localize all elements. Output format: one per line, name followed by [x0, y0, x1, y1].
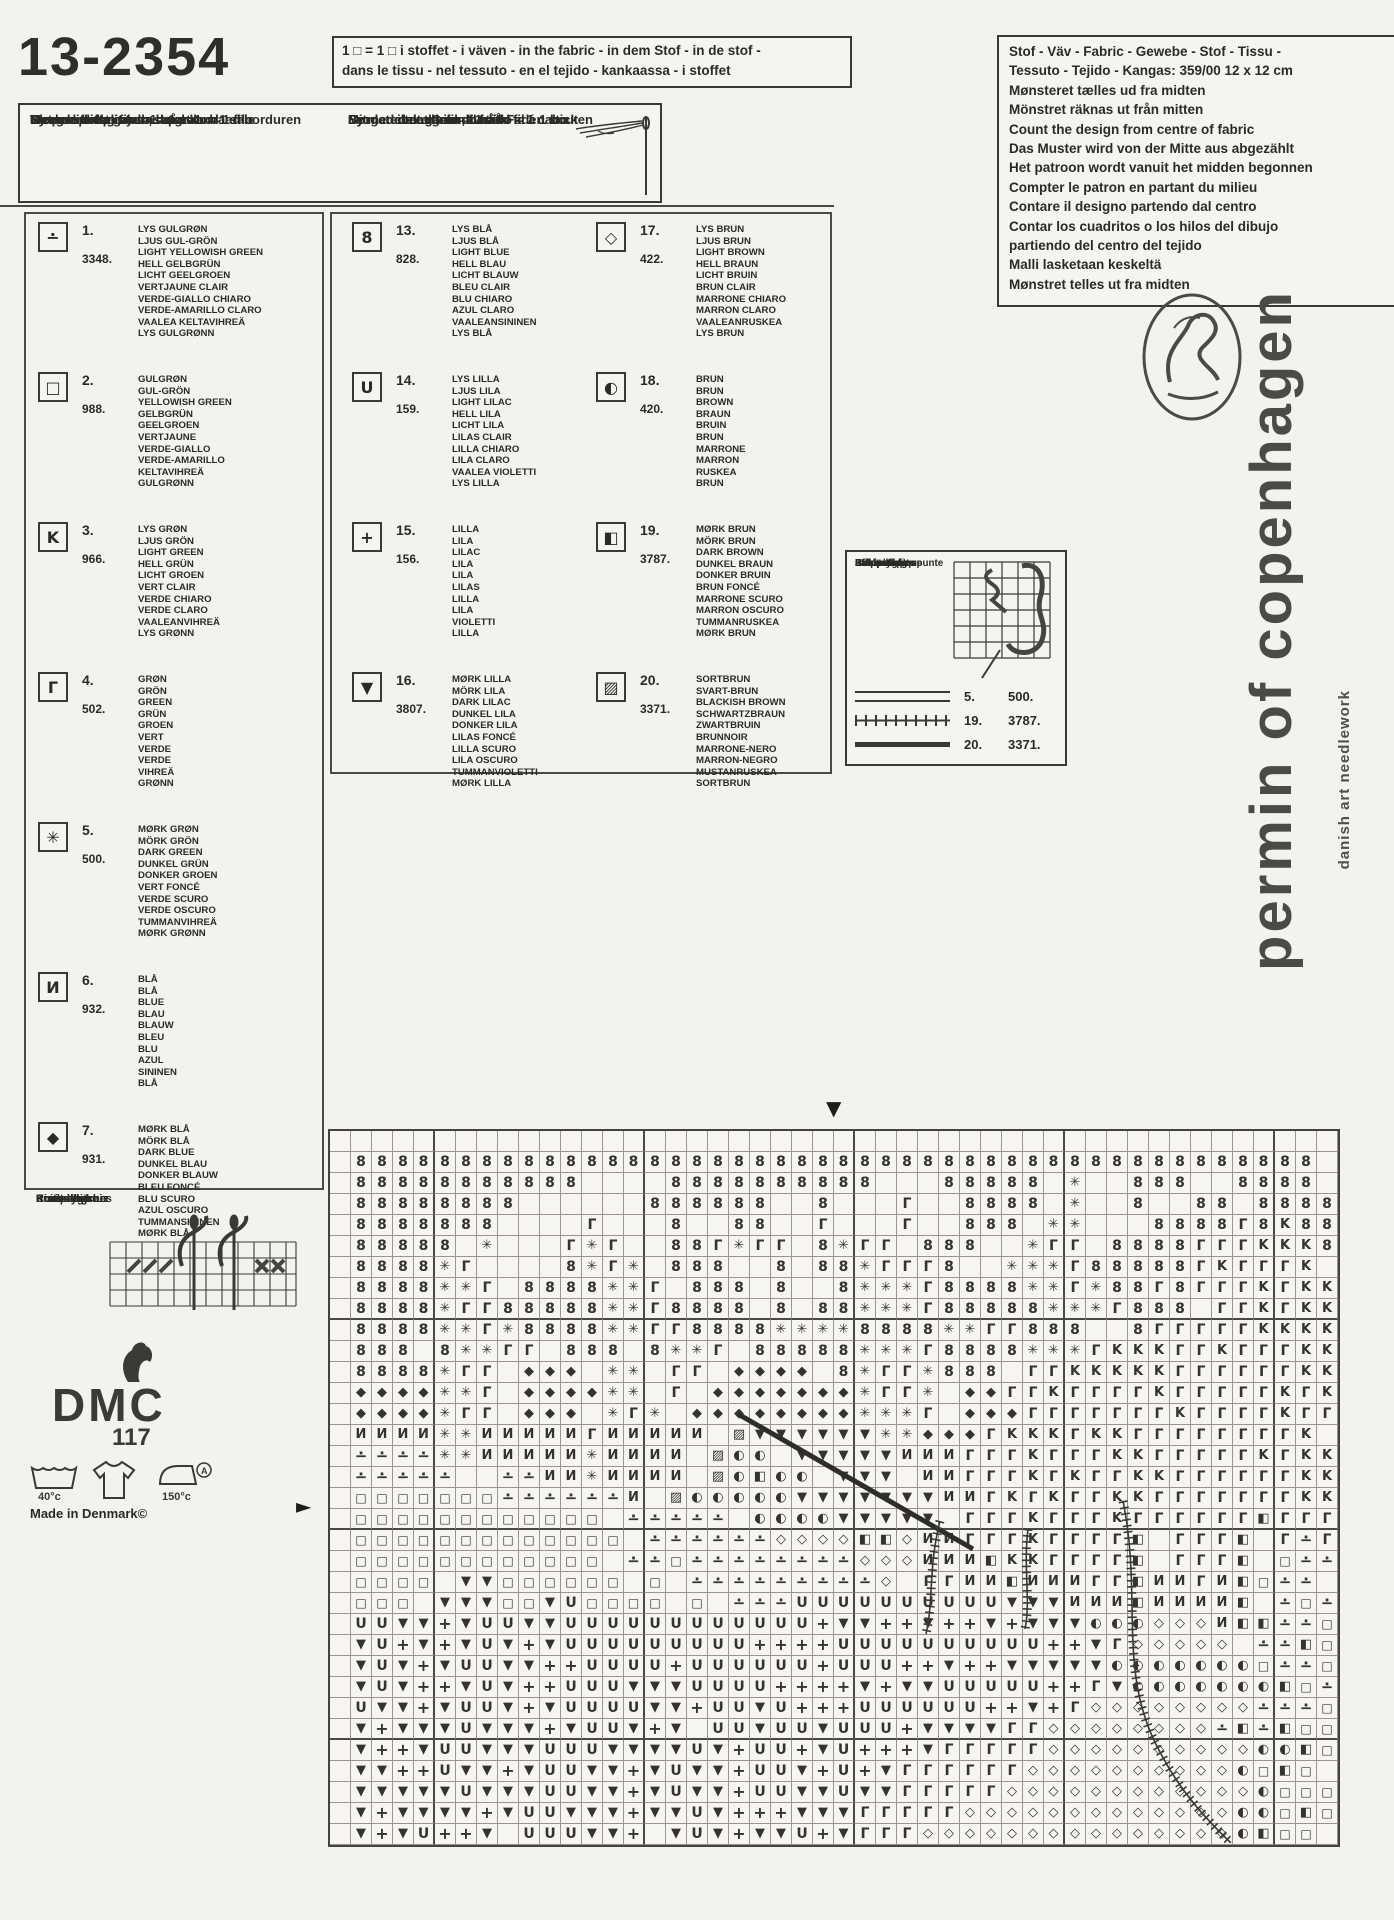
chart-cell: 8: [393, 1278, 414, 1299]
chart-cell: 8: [1170, 1152, 1191, 1173]
chart-cell: ✳: [477, 1236, 498, 1257]
text-line: Sy med delt garn = 1 tråd: [348, 111, 503, 129]
chart-cell: U: [1023, 1635, 1044, 1656]
legend-color-names: MØRK GRØNMÖRK GRÖNDARK GREENDUNKEL GRÜND…: [138, 824, 217, 940]
chart-cell: U: [561, 1698, 582, 1719]
chart-cell: И: [897, 1446, 918, 1467]
chart-cell: ✳: [876, 1404, 897, 1425]
chart-cell: [330, 1509, 351, 1530]
chart-cell: ∸: [708, 1572, 729, 1593]
chart-cell: ▼: [918, 1509, 939, 1530]
chart-cell: ▼: [372, 1761, 393, 1782]
chart-cell: [456, 1131, 477, 1152]
chart-cell: Γ: [1254, 1383, 1275, 1404]
chart-cell: ◐: [813, 1509, 834, 1530]
chart-cell: Γ: [1275, 1509, 1296, 1530]
color-name: LILLA: [452, 524, 495, 536]
chart-cell: ▼: [393, 1614, 414, 1635]
chart-cell: ✳: [1086, 1299, 1107, 1320]
color-name: BRUN FONCÉ: [696, 582, 784, 594]
chart-cell: +: [414, 1761, 435, 1782]
chart-cell: [330, 1131, 351, 1152]
chart-cell: ▼: [708, 1782, 729, 1803]
chart-cell: 8: [918, 1152, 939, 1173]
chart-cell: K: [1296, 1467, 1317, 1488]
chart-cell: Γ: [1149, 1425, 1170, 1446]
text-line: Tessuto - Tejido - Kangas: 359/00 12 x 1…: [1009, 61, 1391, 80]
chart-cell: Γ: [918, 1761, 939, 1782]
chart-cell: ▼: [477, 1593, 498, 1614]
chart-cell: ◇: [834, 1530, 855, 1551]
chart-cell: [582, 1131, 603, 1152]
chart-cell: +: [897, 1656, 918, 1677]
color-name: GREEN: [138, 697, 174, 709]
chart-cell: [1044, 1194, 1065, 1215]
chart-cell: [1086, 1215, 1107, 1236]
chart-cell: Γ: [477, 1299, 498, 1320]
chart-cell: 8: [687, 1299, 708, 1320]
chart-cell: ◐: [750, 1488, 771, 1509]
chart-cell: И: [939, 1467, 960, 1488]
chart-cell: ▼: [435, 1698, 456, 1719]
chart-cell: [1149, 1551, 1170, 1572]
chart-cell: Γ: [666, 1320, 687, 1341]
chart-cell: [477, 1257, 498, 1278]
chart-cell: Γ: [1149, 1509, 1170, 1530]
color-name: MARRONE CHIARO: [696, 294, 786, 306]
chart-cell: Γ: [981, 1467, 1002, 1488]
chart-cell: 8: [687, 1194, 708, 1215]
chart-cell: □: [351, 1593, 372, 1614]
legend-color-names: LYS GULGRØNLJUS GUL-GRÖNLIGHT YELLOWISH …: [138, 224, 263, 340]
chart-cell: □: [1275, 1824, 1296, 1845]
chart-cell: K: [1296, 1236, 1317, 1257]
chart-cell: ◆: [792, 1383, 813, 1404]
chart-cell: [645, 1488, 666, 1509]
chart-cell: 8: [771, 1257, 792, 1278]
chart-cell: ◧: [1296, 1740, 1317, 1761]
chart-cell: Γ: [1107, 1467, 1128, 1488]
chart-cell: □: [372, 1488, 393, 1509]
chart-cell: ✳: [918, 1383, 939, 1404]
chart-cell: Γ: [1170, 1467, 1191, 1488]
text-line: Korssting: [36, 1192, 87, 1207]
brand-tagline-wrap: danish art needlework: [1336, 690, 1353, 990]
chart-cell: Γ: [1002, 1509, 1023, 1530]
chart-cell: U: [540, 1782, 561, 1803]
chart-cell: Γ: [1254, 1257, 1275, 1278]
legend-thread-code: 422.: [640, 252, 690, 266]
text-line: Het patroon wordt vanuit het midden bego…: [1009, 158, 1391, 177]
chart-cell: [498, 1383, 519, 1404]
chart-cell: ◐: [1254, 1803, 1275, 1824]
chart-cell: 8: [1086, 1257, 1107, 1278]
chart-cell: U: [519, 1824, 540, 1845]
chart-cell: ✳: [603, 1383, 624, 1404]
chart-cell: U: [876, 1698, 897, 1719]
chart-cell: ◧: [1233, 1551, 1254, 1572]
chart-cell: 8: [1296, 1215, 1317, 1236]
chart-cell: ▼: [351, 1656, 372, 1677]
chart-cell: U: [708, 1635, 729, 1656]
chart-cell: ▼: [498, 1656, 519, 1677]
chart-cell: +: [876, 1614, 897, 1635]
chart-cell: Γ: [1191, 1467, 1212, 1488]
fabric-note-box: 1 □ = 1 □ i stoffet - i väven - in the f…: [332, 36, 852, 88]
chart-cell: ∸: [1254, 1719, 1275, 1740]
chart-cell: U: [771, 1782, 792, 1803]
chart-cell: ▼: [813, 1782, 834, 1803]
chart-cell: +: [540, 1656, 561, 1677]
chart-cell: +: [1065, 1677, 1086, 1698]
chart-cell: 8: [750, 1215, 771, 1236]
chart-cell: Γ: [1044, 1530, 1065, 1551]
chart-cell: ∸: [1317, 1551, 1338, 1572]
chart-cell: [855, 1215, 876, 1236]
chart-cell: Γ: [960, 1509, 981, 1530]
chart-cell: ∸: [393, 1467, 414, 1488]
color-name: MÖRK BLÅ: [138, 1136, 220, 1148]
chart-cell: U: [750, 1656, 771, 1677]
chart-cell: K: [1128, 1362, 1149, 1383]
color-name: LILAC: [452, 547, 495, 559]
chart-cell: ◧: [1233, 1530, 1254, 1551]
fabric-note-line1: 1 □ = 1 □ i stoffet - i väven - in the f…: [342, 41, 842, 61]
chart-cell: ∸: [687, 1509, 708, 1530]
chart-cell: K: [1317, 1362, 1338, 1383]
chart-cell: Γ: [1086, 1341, 1107, 1362]
chart-cell: [330, 1635, 351, 1656]
chart-cell: Γ: [1002, 1383, 1023, 1404]
color-name: VERDE SCURO: [138, 894, 217, 906]
chart-cell: ▼: [813, 1446, 834, 1467]
chart-cell: И: [960, 1488, 981, 1509]
chart-cell: [834, 1215, 855, 1236]
chart-cell: ◐: [1275, 1740, 1296, 1761]
chart-cell: U: [708, 1698, 729, 1719]
color-name: DARK GREEN: [138, 847, 217, 859]
chart-cell: Γ: [1275, 1488, 1296, 1509]
chart-cell: 8: [498, 1152, 519, 1173]
chart-cell: □: [456, 1530, 477, 1551]
backstitch-number: 20.: [964, 737, 1008, 752]
chart-cell: ▼: [939, 1719, 960, 1740]
chart-cell: 8: [372, 1362, 393, 1383]
chart-cell: U: [582, 1677, 603, 1698]
chart-cell: ◇: [1128, 1635, 1149, 1656]
color-name: LICHT GROEN: [138, 570, 220, 582]
chart-cell: K: [1296, 1257, 1317, 1278]
color-name: DUNKEL BLAU: [138, 1159, 220, 1171]
chart-cell: [330, 1173, 351, 1194]
chart-cell: 8: [939, 1341, 960, 1362]
chart-cell: +: [750, 1803, 771, 1824]
chart-cell: 8: [981, 1362, 1002, 1383]
chart-cell: ▼: [456, 1635, 477, 1656]
backstitch-number: 5.: [964, 689, 1008, 704]
chart-cell: □: [414, 1572, 435, 1593]
chart-cell: Γ: [981, 1320, 1002, 1341]
chart-cell: [330, 1299, 351, 1320]
chart-cell: □: [1296, 1593, 1317, 1614]
chart-cell: [708, 1131, 729, 1152]
chart-cell: Γ: [897, 1194, 918, 1215]
chart-cell: Γ: [1233, 1425, 1254, 1446]
chart-cell: [645, 1824, 666, 1845]
chart-cell: [1128, 1131, 1149, 1152]
color-name: GUL-GRÖN: [138, 386, 232, 398]
chart-cell: 8: [1023, 1173, 1044, 1194]
chart-cell: □: [498, 1593, 519, 1614]
chart-cell: 8: [708, 1299, 729, 1320]
wash-icon: 40°c: [28, 1458, 80, 1502]
chart-cell: ◧: [1128, 1551, 1149, 1572]
chart-cell: 8: [393, 1320, 414, 1341]
chart-cell: [1191, 1299, 1212, 1320]
color-name: AZUL: [138, 1055, 177, 1067]
legend-number: 14.: [396, 372, 446, 388]
chart-cell: U: [687, 1614, 708, 1635]
chart-cell: ✳: [1065, 1194, 1086, 1215]
color-name: MØRK BLÅ: [138, 1124, 220, 1136]
chart-cell: +: [435, 1677, 456, 1698]
chart-cell: ✳: [624, 1278, 645, 1299]
chart-cell: 8: [435, 1215, 456, 1236]
chart-cell: ▼: [834, 1614, 855, 1635]
chart-cell: ◇: [813, 1530, 834, 1551]
chart-cell: 8: [771, 1278, 792, 1299]
chart-cell: 8: [939, 1257, 960, 1278]
chart-cell: ▼: [1023, 1593, 1044, 1614]
chart-cell: 8: [351, 1257, 372, 1278]
chart-cell: [1254, 1131, 1275, 1152]
chart-cell: ▼: [603, 1782, 624, 1803]
chart-cell: U: [855, 1698, 876, 1719]
chart-cell: Γ: [708, 1341, 729, 1362]
chart-cell: [624, 1530, 645, 1551]
chart-cell: ◇: [1065, 1740, 1086, 1761]
chart-cell: U: [876, 1635, 897, 1656]
color-name: MØRK LILLA: [452, 674, 538, 686]
chart-cell: [330, 1782, 351, 1803]
chart-cell: ◇: [1065, 1782, 1086, 1803]
chart-cell: И: [645, 1425, 666, 1446]
chart-cell: [1107, 1194, 1128, 1215]
chart-cell: ▼: [855, 1614, 876, 1635]
chart-cell: [498, 1257, 519, 1278]
chart-cell: Γ: [1191, 1446, 1212, 1467]
chart-cell: □: [1317, 1656, 1338, 1677]
chart-cell: U: [477, 1635, 498, 1656]
chart-cell: U: [603, 1656, 624, 1677]
chart-cell: [1002, 1131, 1023, 1152]
chart-cell: Γ: [1170, 1341, 1191, 1362]
chart-cell: 8: [666, 1236, 687, 1257]
color-name: MARRONE SCURO: [696, 594, 784, 606]
chart-cell: U: [561, 1761, 582, 1782]
legend-number: 3.: [82, 522, 132, 538]
chart-cell: ▼: [393, 1698, 414, 1719]
chart-cell: ◐: [771, 1488, 792, 1509]
chart-cell: ◆: [708, 1404, 729, 1425]
chart-cell: ◐: [729, 1446, 750, 1467]
chart-cell: K: [1128, 1488, 1149, 1509]
chart-cell: ◧: [1275, 1677, 1296, 1698]
chart-cell: Γ: [645, 1320, 666, 1341]
chart-cell: [876, 1173, 897, 1194]
chart-cell: □: [1317, 1614, 1338, 1635]
chart-cell: ✳: [813, 1320, 834, 1341]
chart-cell: Γ: [1086, 1488, 1107, 1509]
chart-cell: K: [1023, 1509, 1044, 1530]
chart-cell: ∸: [1296, 1614, 1317, 1635]
chart-cell: И: [645, 1446, 666, 1467]
chart-cell: □: [351, 1509, 372, 1530]
chart-cell: Γ: [1275, 1257, 1296, 1278]
chart-cell: 8: [813, 1236, 834, 1257]
chart-cell: [939, 1131, 960, 1152]
chart-cell: [561, 1215, 582, 1236]
chart-cell: ◐: [687, 1488, 708, 1509]
chart-cell: 8: [582, 1152, 603, 1173]
chart-cell: 8: [351, 1362, 372, 1383]
chart-cell: □: [561, 1572, 582, 1593]
chart-cell: 8: [1107, 1236, 1128, 1257]
chart-cell: Γ: [981, 1761, 1002, 1782]
chart-cell: ◐: [1233, 1656, 1254, 1677]
chart-cell: [813, 1467, 834, 1488]
chart-cell: 8: [687, 1278, 708, 1299]
chart-cell: ◐: [1149, 1656, 1170, 1677]
chart-cell: И: [1065, 1593, 1086, 1614]
chart-cell: [330, 1719, 351, 1740]
chart-cell: □: [1317, 1740, 1338, 1761]
chart-cell: ✳: [435, 1425, 456, 1446]
chart-cell: [1023, 1215, 1044, 1236]
color-name: TUMMANVIHREÄ: [138, 917, 217, 929]
chart-cell: ◆: [981, 1383, 1002, 1404]
chart-cell: Γ: [1254, 1404, 1275, 1425]
chart-cell: K: [1296, 1446, 1317, 1467]
chart-cell: Γ: [477, 1383, 498, 1404]
chart-cell: Γ: [1128, 1383, 1149, 1404]
legend-color-names: LYS BRUNLJUS BRUNLIGHT BROWNHELL BRAUNLI…: [696, 224, 786, 340]
chart-cell: [939, 1404, 960, 1425]
chart-cell: ▼: [855, 1509, 876, 1530]
chart-cell: ▼: [351, 1719, 372, 1740]
chart-cell: 8: [1128, 1278, 1149, 1299]
chart-cell: ✳: [498, 1320, 519, 1341]
chart-cell: □: [498, 1572, 519, 1593]
chart-cell: ◇: [897, 1551, 918, 1572]
chart-cell: [645, 1173, 666, 1194]
chart-cell: [855, 1194, 876, 1215]
chart-cell: Γ: [1275, 1425, 1296, 1446]
color-name: DONKER LILA: [452, 720, 538, 732]
chart-cell: U: [645, 1635, 666, 1656]
chart-cell: ◆: [1002, 1404, 1023, 1425]
chart-cell: U: [708, 1614, 729, 1635]
chart-cell: □: [414, 1551, 435, 1572]
chart-cell: ▼: [561, 1803, 582, 1824]
chart-cell: 8: [981, 1299, 1002, 1320]
color-name: MØRK BRUN: [696, 524, 784, 536]
color-name: LYS BRUN: [696, 328, 786, 340]
chart-cell: ▼: [477, 1719, 498, 1740]
chart-cell: ◇: [1065, 1761, 1086, 1782]
color-name: VERT FONCÉ: [138, 882, 217, 894]
chart-cell: U: [897, 1593, 918, 1614]
chart-cell: ▼: [708, 1761, 729, 1782]
chart-cell: [813, 1362, 834, 1383]
chart-cell: ▼: [351, 1803, 372, 1824]
legend-symbol-icon: ◇: [596, 222, 626, 252]
chart-cell: 8: [687, 1320, 708, 1341]
chart-cell: [1086, 1236, 1107, 1257]
chart-cell: ▼: [393, 1803, 414, 1824]
chart-cell: [624, 1173, 645, 1194]
chart-cell: ◇: [1212, 1698, 1233, 1719]
chart-cell: +: [372, 1803, 393, 1824]
chart-cell: ▼: [687, 1761, 708, 1782]
chart-cell: 8: [1002, 1278, 1023, 1299]
chart-cell: 8: [981, 1278, 1002, 1299]
chart-cell: 8: [666, 1194, 687, 1215]
chart-cell: ◧: [1233, 1593, 1254, 1614]
chart-cell: Γ: [1212, 1446, 1233, 1467]
chart-cell: Γ: [645, 1299, 666, 1320]
chart-cell: ✳: [918, 1362, 939, 1383]
chart-cell: 8: [1275, 1194, 1296, 1215]
color-name: VERT: [138, 732, 174, 744]
chart-cell: 8: [897, 1320, 918, 1341]
text-line: Stof - Väv - Fabric - Gewebe - Stof - Ti…: [1009, 42, 1391, 61]
chart-cell: U: [792, 1593, 813, 1614]
chart-cell: ∸: [1212, 1719, 1233, 1740]
chart-cell: ▼: [666, 1698, 687, 1719]
chart-cell: +: [729, 1740, 750, 1761]
chart-cell: ✳: [624, 1299, 645, 1320]
chart-cell: Γ: [1212, 1488, 1233, 1509]
chart-cell: 8: [687, 1257, 708, 1278]
color-name: MARRONE-NERO: [696, 744, 786, 756]
chart-cell: U: [897, 1698, 918, 1719]
chart-cell: ◐: [1107, 1614, 1128, 1635]
chart-cell: Γ: [1212, 1425, 1233, 1446]
chart-cell: Γ: [855, 1236, 876, 1257]
chart-cell: [771, 1446, 792, 1467]
chart-cell: ◐: [1128, 1677, 1149, 1698]
chart-cell: ◐: [771, 1467, 792, 1488]
chart-cell: Γ: [960, 1530, 981, 1551]
chart-cell: ◐: [729, 1488, 750, 1509]
chart-cell: □: [1254, 1761, 1275, 1782]
chart-cell: ▼: [876, 1761, 897, 1782]
chart-cell: ◆: [771, 1362, 792, 1383]
chart-cell: ▼: [414, 1803, 435, 1824]
chart-cell: [330, 1803, 351, 1824]
legend-thread-code: 420.: [640, 402, 690, 416]
chart-cell: U: [750, 1614, 771, 1635]
color-name: BLEU FONCÉ: [138, 1182, 220, 1194]
chart-cell: 8: [393, 1236, 414, 1257]
chart-cell: ◆: [561, 1362, 582, 1383]
center-column-marker: ▼: [826, 1096, 841, 1120]
chart-cell: ◇: [981, 1824, 1002, 1845]
chart-cell: ✳: [1023, 1257, 1044, 1278]
color-name: BLÅ: [138, 1078, 177, 1090]
chart-cell: [1275, 1131, 1296, 1152]
